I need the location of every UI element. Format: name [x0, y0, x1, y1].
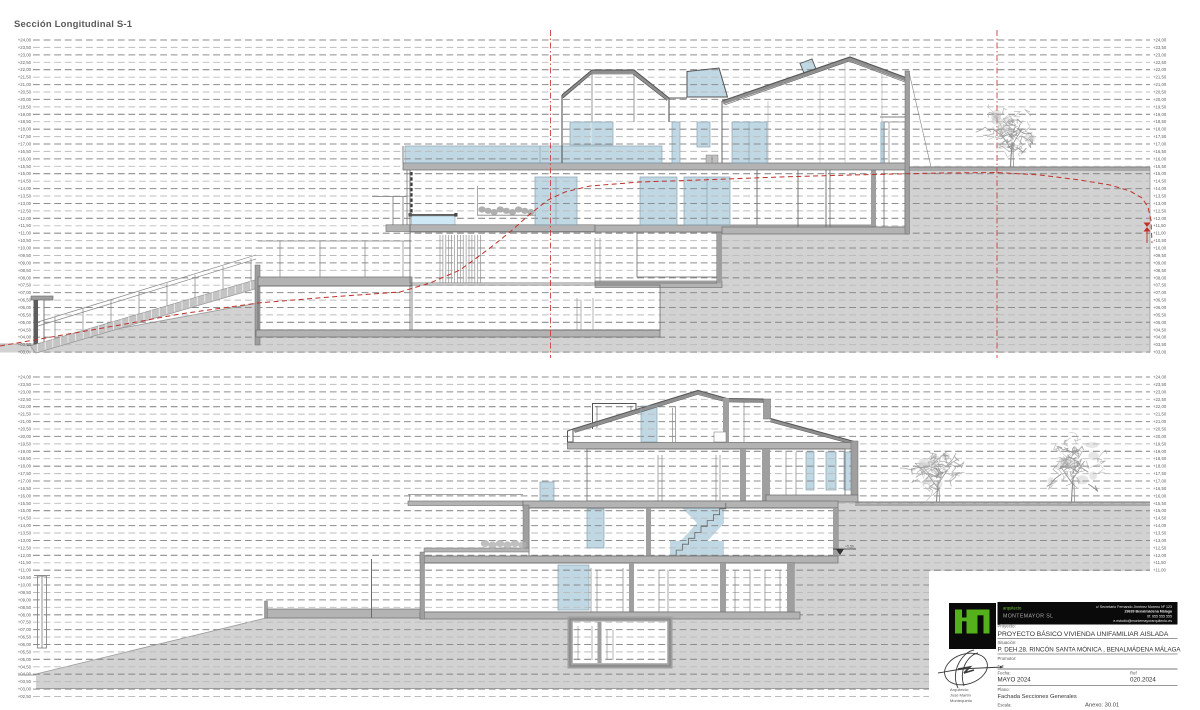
- svg-text:+05,00: +05,00: [18, 320, 32, 325]
- svg-text:+09,00: +09,00: [18, 260, 32, 265]
- svg-text:+06,00: +06,00: [1153, 305, 1167, 310]
- svg-text:+05,50: +05,50: [1153, 312, 1167, 317]
- svg-text:+06,50: +06,50: [18, 635, 32, 640]
- svg-text:+11,00: +11,00: [18, 231, 32, 236]
- svg-text:+23,50: +23,50: [18, 382, 32, 387]
- svg-text:+11,00: +11,00: [1153, 231, 1167, 236]
- svg-text:+09,00: +09,00: [1153, 260, 1167, 265]
- svg-text:+19,50: +19,50: [1153, 104, 1167, 109]
- svg-text:+14,00: +14,00: [18, 523, 32, 528]
- svg-text:+17,00: +17,00: [18, 142, 32, 147]
- svg-text:+15,00: +15,00: [18, 508, 32, 513]
- svg-text:+17,00: +17,00: [1153, 479, 1167, 484]
- svg-text:+23,50: +23,50: [18, 45, 32, 50]
- svg-text:Situación:: Situación:: [998, 640, 1017, 645]
- svg-text:+11,00: +11,00: [18, 568, 32, 573]
- svg-text:+15,00: +15,00: [1153, 171, 1167, 176]
- svg-text:+16,50: +16,50: [1153, 486, 1167, 491]
- svg-text:+23,00: +23,00: [1153, 389, 1167, 394]
- svg-text:+21,00: +21,00: [1153, 419, 1167, 424]
- svg-text:Escala:: Escala:: [998, 703, 1012, 708]
- svg-text:+08,50: +08,50: [1153, 268, 1167, 273]
- svg-text:+13,00: +13,00: [1153, 201, 1167, 206]
- svg-text:+17,50: +17,50: [1153, 471, 1167, 476]
- svg-text:+19,50: +19,50: [18, 441, 32, 446]
- svg-text:+20,50: +20,50: [1153, 427, 1167, 432]
- svg-text:+15,50: +15,50: [18, 164, 32, 169]
- svg-text:+17,50: +17,50: [1153, 134, 1167, 139]
- svg-text:020.2024: 020.2024: [1130, 677, 1156, 684]
- svg-text:+06,00: +06,00: [18, 305, 32, 310]
- svg-text:Plano:: Plano:: [998, 687, 1010, 692]
- svg-text:Proyecto:: Proyecto:: [998, 624, 1016, 629]
- svg-text:+23,00: +23,00: [1153, 52, 1167, 57]
- svg-text:+14,50: +14,50: [1153, 516, 1167, 521]
- svg-text:e.estudio@montemayorarquitecto: e.estudio@montemayorarquitecto.es: [1113, 619, 1172, 623]
- svg-text:Arquitecto:: Arquitecto:: [950, 687, 969, 692]
- svg-text:+07,50: +07,50: [18, 283, 32, 288]
- svg-text:+09,00: +09,00: [18, 597, 32, 602]
- svg-text:c/ Secretario Fernando Jiménez: c/ Secretario Fernando Jiménez Moreno Nº…: [1096, 605, 1172, 609]
- svg-text:+21,50: +21,50: [1153, 412, 1167, 417]
- svg-text:Sección Longitudinal S-1: Sección Longitudinal S-1: [14, 19, 133, 30]
- svg-text:+16,50: +16,50: [18, 486, 32, 491]
- svg-text:+18,50: +18,50: [18, 119, 32, 124]
- svg-text:+19,00: +19,00: [1153, 112, 1167, 117]
- svg-text:Promotor:: Promotor:: [998, 656, 1017, 661]
- svg-text:+21,00: +21,00: [18, 419, 32, 424]
- svg-text:+23,50: +23,50: [1153, 45, 1167, 50]
- svg-text:+11,50: +11,50: [18, 223, 32, 228]
- svg-text:+12,00: +12,00: [18, 216, 32, 221]
- svg-text:+04,50: +04,50: [18, 664, 32, 669]
- svg-text:+15,00: +15,00: [1153, 508, 1167, 513]
- svg-text:+15,50: +15,50: [1153, 501, 1167, 506]
- svg-text:+06,50: +06,50: [18, 298, 32, 303]
- svg-text:+16,00: +16,00: [1153, 156, 1167, 161]
- svg-text:+13,00: +13,00: [1153, 538, 1167, 543]
- svg-text:+22,00: +22,00: [18, 404, 32, 409]
- svg-text:+22,50: +22,50: [1153, 397, 1167, 402]
- svg-text:+20,00: +20,00: [18, 97, 32, 102]
- svg-text:+20,00: +20,00: [18, 434, 32, 439]
- svg-text:+22,00: +22,00: [1153, 67, 1167, 72]
- svg-text:+04,50: +04,50: [18, 327, 32, 332]
- svg-text:+05,50: +05,50: [18, 649, 32, 654]
- svg-text:+23,50: +23,50: [1153, 382, 1167, 387]
- svg-text:+08,50: +08,50: [18, 268, 32, 273]
- svg-text:+22,00: +22,00: [1153, 404, 1167, 409]
- svg-text:+04,00: +04,00: [18, 335, 32, 340]
- svg-text:+19,00: +19,00: [1153, 449, 1167, 454]
- svg-text:+04,00: +04,00: [1153, 335, 1167, 340]
- svg-text:+19,00: +19,00: [18, 449, 32, 454]
- svg-text:+24,00: +24,00: [18, 38, 32, 43]
- svg-text:+12,50: +12,50: [18, 208, 32, 213]
- svg-text:+14,00: +14,00: [1153, 186, 1167, 191]
- svg-text:+10,50: +10,50: [18, 575, 32, 580]
- svg-text:+05,00: +05,00: [1153, 320, 1167, 325]
- svg-text:+08,00: +08,00: [1153, 275, 1167, 280]
- svg-text:+24,00: +24,00: [18, 375, 32, 380]
- svg-text:+13,50: +13,50: [1153, 531, 1167, 536]
- svg-text:Montequinto: Montequinto: [950, 698, 973, 703]
- svg-text:+07,00: +07,00: [1153, 290, 1167, 295]
- svg-text:+14,00: +14,00: [1153, 523, 1167, 528]
- svg-text:+20,00: +20,00: [1153, 97, 1167, 102]
- svg-text:+15,50: +15,50: [18, 501, 32, 506]
- svg-text:29639 Benalmádena Málaga: 29639 Benalmádena Málaga: [1124, 610, 1173, 614]
- svg-text:+20,00: +20,00: [1153, 434, 1167, 439]
- svg-text:MONTEMAYOR SL: MONTEMAYOR SL: [1003, 614, 1053, 620]
- svg-text:+18,50: +18,50: [1153, 119, 1167, 124]
- svg-text:+21,00: +21,00: [18, 82, 32, 87]
- svg-text:+07,50: +07,50: [18, 620, 32, 625]
- svg-text:+09,50: +09,50: [1153, 253, 1167, 258]
- svg-text:+04,50: +04,50: [1153, 327, 1167, 332]
- svg-text:+20,50: +20,50: [18, 427, 32, 432]
- svg-text:+24,00: +24,00: [1153, 375, 1167, 380]
- svg-text:+16,00: +16,00: [18, 493, 32, 498]
- svg-text:+12,50: +12,50: [1153, 208, 1167, 213]
- svg-text:+03,00: +03,00: [18, 350, 32, 355]
- svg-text:+21,50: +21,50: [18, 75, 32, 80]
- svg-text:+11,50: +11,50: [18, 560, 32, 565]
- svg-text:tlf: 655 555 555: tlf: 655 555 555: [1147, 614, 1172, 618]
- svg-text:+17,50: +17,50: [18, 471, 32, 476]
- svg-text:+14,50: +14,50: [18, 516, 32, 521]
- svg-text:+17,00: +17,00: [1153, 142, 1167, 147]
- svg-text:+22,50: +22,50: [18, 60, 32, 65]
- svg-text:P. DEH.28. RINCÓN SANTA MÓNICA: P. DEH.28. RINCÓN SANTA MÓNICA , BENALMÁ…: [998, 647, 1182, 654]
- svg-text:+15,00: +15,00: [18, 171, 32, 176]
- svg-text:José Martín: José Martín: [950, 693, 971, 698]
- svg-text:+05,00: +05,00: [18, 657, 32, 662]
- svg-text:+12,50: +12,50: [1153, 545, 1167, 550]
- svg-text:+18,50: +18,50: [1153, 456, 1167, 461]
- svg-text:+21,50: +21,50: [1153, 75, 1167, 80]
- svg-text:+08,00: +08,00: [18, 275, 32, 280]
- svg-text:+13,50: +13,50: [18, 531, 32, 536]
- svg-text:Fachada Secciones Generales: Fachada Secciones Generales: [998, 694, 1077, 700]
- svg-text:+10,00: +10,00: [18, 583, 32, 588]
- svg-text:+11,50: +11,50: [1153, 223, 1167, 228]
- svg-text:+22,50: +22,50: [18, 397, 32, 402]
- svg-text:+09,50: +09,50: [18, 253, 32, 258]
- svg-text:+07,00: +07,00: [18, 627, 32, 632]
- svg-text:+16,50: +16,50: [18, 149, 32, 154]
- svg-text:+13,00: +13,00: [18, 538, 32, 543]
- svg-text:+24,00: +24,00: [1153, 38, 1167, 43]
- svg-text:+07,50: +07,50: [1153, 283, 1167, 288]
- svg-text:+07,00: +07,00: [18, 290, 32, 295]
- svg-text:+19,50: +19,50: [18, 104, 32, 109]
- svg-text:+13,50: +13,50: [18, 194, 32, 199]
- svg-text:+10,50: +10,50: [1153, 238, 1167, 243]
- svg-text:+22,50: +22,50: [1153, 60, 1167, 65]
- svg-text:+18,00: +18,00: [18, 127, 32, 132]
- svg-text:+12,00: +12,00: [18, 553, 32, 558]
- svg-text:Anexo: 30.01: Anexo: 30.01: [1085, 703, 1119, 709]
- svg-text:Ref: Ref: [1130, 671, 1137, 676]
- svg-text:+03,00: +03,00: [1153, 350, 1167, 355]
- svg-text:+08,50: +08,50: [18, 605, 32, 610]
- svg-text:+06,00: +06,00: [18, 642, 32, 647]
- svg-text:+23,00: +23,00: [18, 389, 32, 394]
- svg-text:+18,50: +18,50: [18, 456, 32, 461]
- svg-text:+16,00: +16,00: [18, 156, 32, 161]
- svg-text:+12,00: +12,00: [1153, 553, 1167, 558]
- svg-text:+14,00: +14,00: [18, 186, 32, 191]
- svg-text:Fecha:: Fecha:: [998, 671, 1011, 676]
- svg-text:MAYO 2024: MAYO 2024: [998, 677, 1032, 684]
- svg-text:+16,50: +16,50: [1153, 149, 1167, 154]
- svg-text:+5,50: +5,50: [845, 545, 854, 549]
- svg-text:+08,00: +08,00: [18, 612, 32, 617]
- svg-text:+21,50: +21,50: [18, 412, 32, 417]
- svg-text:+18,00: +18,00: [18, 464, 32, 469]
- svg-text:+19,00: +19,00: [18, 112, 32, 117]
- svg-text:+20,50: +20,50: [1153, 90, 1167, 95]
- svg-text:PROYECTO BÁSICO VIVIENDA UNIFA: PROYECTO BÁSICO VIVIENDA UNIFAMILIAR AIS…: [998, 629, 1169, 638]
- svg-text:+06,50: +06,50: [1153, 298, 1167, 303]
- svg-text:+12,00: +12,00: [1153, 216, 1167, 221]
- svg-text:+18,00: +18,00: [1153, 464, 1167, 469]
- svg-text:+13,00: +13,00: [18, 201, 32, 206]
- svg-text:+10,00: +10,00: [1153, 246, 1167, 251]
- svg-text:+16,00: +16,00: [1153, 493, 1167, 498]
- svg-text:+17,50: +17,50: [18, 134, 32, 139]
- svg-text:+18,00: +18,00: [1153, 127, 1167, 132]
- svg-text:+23,00: +23,00: [18, 52, 32, 57]
- svg-text:+02,50: +02,50: [18, 694, 32, 699]
- svg-text:+05,50: +05,50: [18, 312, 32, 317]
- svg-text:arquitecto: arquitecto: [1003, 606, 1022, 611]
- svg-text:+19,50: +19,50: [1153, 441, 1167, 446]
- svg-text:+09,50: +09,50: [18, 590, 32, 595]
- svg-text:+10,50: +10,50: [18, 238, 32, 243]
- svg-text:+12,50: +12,50: [18, 545, 32, 550]
- svg-text:+14,50: +14,50: [18, 179, 32, 184]
- svg-text:+10,00: +10,00: [18, 246, 32, 251]
- svg-text:+17,00: +17,00: [18, 479, 32, 484]
- svg-text:+03,00: +03,00: [18, 687, 32, 692]
- svg-text:+11,50: +11,50: [1153, 560, 1167, 565]
- svg-text:+15,50: +15,50: [1153, 164, 1167, 169]
- svg-text:+20,50: +20,50: [18, 90, 32, 95]
- svg-text:+14,50: +14,50: [1153, 179, 1167, 184]
- svg-text:+22,00: +22,00: [18, 67, 32, 72]
- svg-text:+13,50: +13,50: [1153, 194, 1167, 199]
- svg-text:+03,50: +03,50: [1153, 342, 1167, 347]
- svg-text:+04,00: +04,00: [18, 672, 32, 677]
- svg-text:+03,50: +03,50: [18, 679, 32, 684]
- svg-text:+21,00: +21,00: [1153, 82, 1167, 87]
